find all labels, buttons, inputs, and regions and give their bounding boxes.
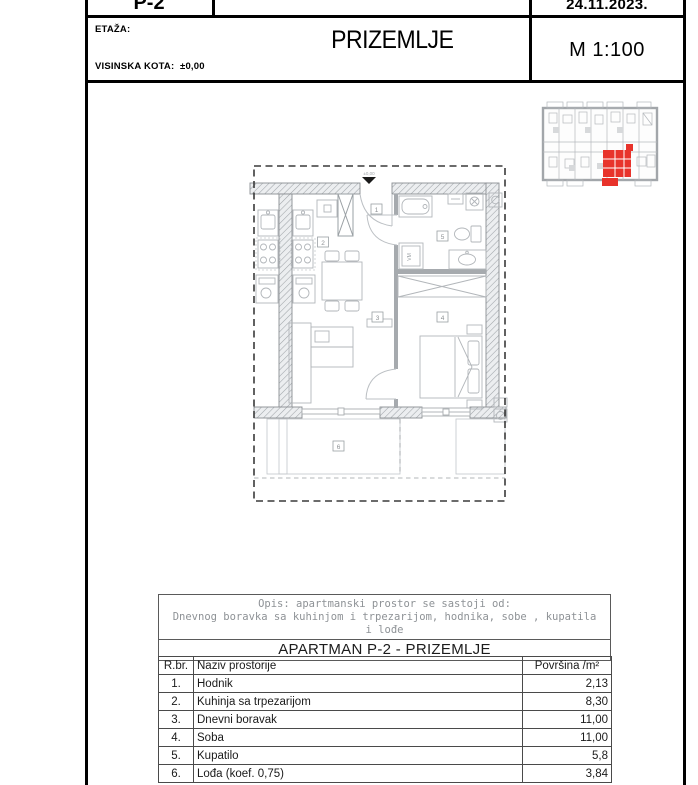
row-name: Lođa (koef. 0,75) <box>194 765 523 783</box>
room-label-kuhinja: 2 <box>321 240 325 247</box>
loggia <box>254 419 505 478</box>
wardrobe <box>398 276 486 297</box>
row-area: 3,84 <box>523 765 612 783</box>
row-area: 5,8 <box>523 747 612 765</box>
floor-plan: VM <box>248 150 518 515</box>
row-area: 2,13 <box>523 675 612 693</box>
wall-cabinet <box>317 200 337 217</box>
washing-machine-label: VM <box>407 253 413 261</box>
col-header-naziv: Naziv prostorije <box>194 657 523 675</box>
row-num: 5. <box>159 747 194 765</box>
sofa <box>289 323 353 403</box>
room-label-dnevni: 3 <box>376 315 380 322</box>
nightstand <box>467 325 482 334</box>
kitchen <box>291 200 337 303</box>
visinska-label: VISINSKA KOTA: <box>95 61 174 72</box>
bed <box>420 325 482 409</box>
table-row: 6. Lođa (koef. 0,75) 3,84 <box>159 765 612 783</box>
col-header-povrsina: Površina /m² <box>523 657 612 675</box>
visinska-value: ±0,00 <box>180 61 205 72</box>
row-area: 8,30 <box>523 693 612 711</box>
row-name: Kupatilo <box>194 747 523 765</box>
key-plan-building <box>543 102 657 186</box>
description-line-2: Dnevnog boravka sa kuhinjom i trpezarijo… <box>163 611 606 624</box>
description-box: Opis: apartmanski prostor se sastoji od:… <box>158 594 611 661</box>
entry-closet <box>338 194 353 236</box>
row-name: Hodnik <box>194 675 523 693</box>
areas-table-header: R.br. Naziv prostorije Površina /m² <box>159 657 612 675</box>
row-area: 11,00 <box>523 711 612 729</box>
neighbour-kitchen <box>256 210 280 303</box>
row-num: 4. <box>159 729 194 747</box>
room-label-kupatilo: 5 <box>441 234 445 241</box>
description-text: Opis: apartmanski prostor se sastoji od:… <box>159 595 610 639</box>
row-num: 3. <box>159 711 194 729</box>
visinska-kota: VISINSKA KOTA: ±0,00 <box>95 61 205 72</box>
drawing-sheet: P-2 24.11.2023. ETAŽA: VISINSKA KOTA: ±0… <box>0 0 698 785</box>
sheet-right-border <box>683 0 686 785</box>
row-num: 2. <box>159 693 194 711</box>
key-plan <box>539 97 665 192</box>
titleblock-row-divider <box>85 15 686 18</box>
table-row: 5. Kupatilo 5,8 <box>159 747 612 765</box>
table-row: 1. Hodnik 2,13 <box>159 675 612 693</box>
row-area: 11,00 <box>523 729 612 747</box>
room-label-soba: 4 <box>441 315 445 322</box>
dining-table <box>322 251 362 311</box>
stove <box>293 240 313 268</box>
sink-vanity <box>449 250 486 269</box>
row-name: Dnevni boravak <box>194 711 523 729</box>
table-row: 4. Soba 11,00 <box>159 729 612 747</box>
window <box>422 408 470 416</box>
row-num: 6. <box>159 765 194 783</box>
table-row: 2. Kuhinja sa trpezarijom 8,30 <box>159 693 612 711</box>
drawing-date: 24.11.2023. <box>531 0 683 15</box>
entrance-marker: ±0,00 <box>362 171 376 184</box>
row-name: Kuhinja sa trpezarijom <box>194 693 523 711</box>
row-name: Soba <box>194 729 523 747</box>
room-label-hodnik: 1 <box>375 207 379 214</box>
titleblock-bottom-border <box>85 80 686 83</box>
table-row: 3. Dnevni boravak 11,00 <box>159 711 612 729</box>
balcony-door <box>302 408 380 415</box>
toilet <box>471 226 481 242</box>
areas-table: R.br. Naziv prostorije Površina /m² 1. H… <box>158 656 612 783</box>
row-num: 1. <box>159 675 194 693</box>
doors <box>360 194 397 399</box>
sheet-left-border <box>85 0 88 785</box>
entrance-arrow-icon <box>362 177 376 184</box>
entry-elevation: ±0,00 <box>363 171 375 176</box>
col-header-rbr: R.br. <box>159 657 194 675</box>
description-line-3: i lođe <box>163 624 606 637</box>
room-label-lodja: 6 <box>337 444 341 451</box>
bedroom-door <box>366 369 396 399</box>
description-line-1: Opis: apartmanski prostor se sastoji od: <box>163 598 606 611</box>
project-code: P-2 <box>85 0 213 15</box>
drawing-scale: M 1:100 <box>531 39 683 62</box>
